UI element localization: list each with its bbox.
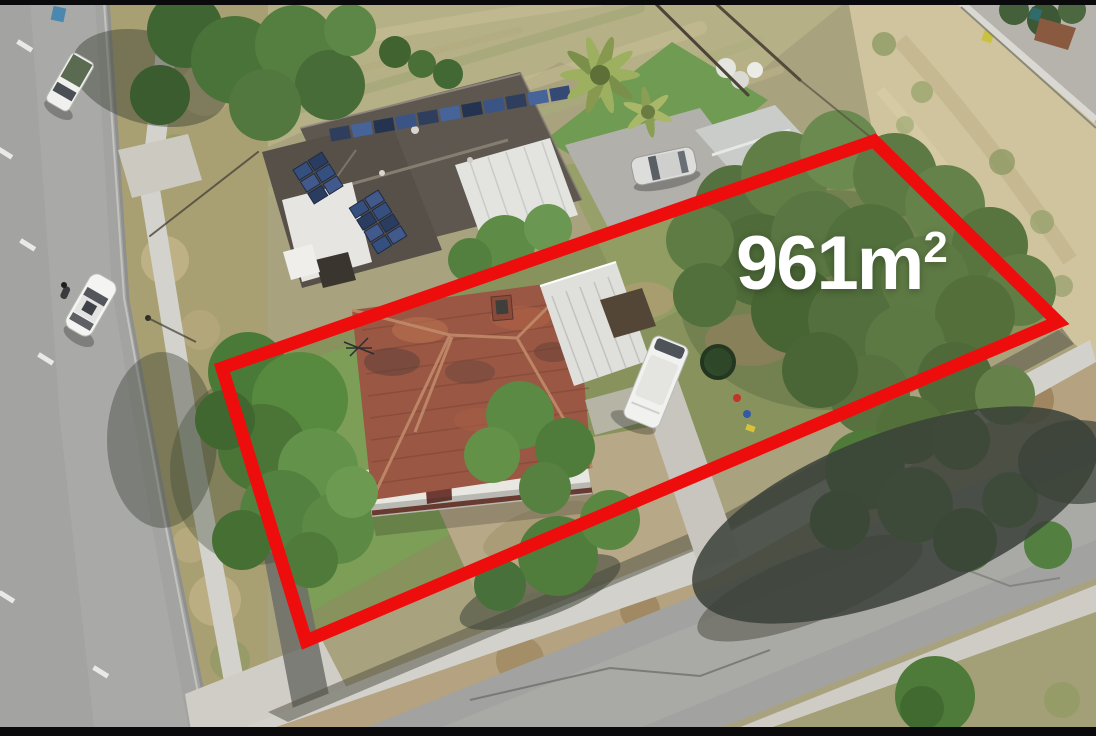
letterbox-top bbox=[0, 0, 1096, 5]
area-value: 961m bbox=[736, 221, 922, 306]
aerial-photo: 961m2 bbox=[0, 0, 1096, 736]
aerial-photo-canvas bbox=[0, 0, 1096, 736]
blue-toy bbox=[743, 410, 751, 418]
chimney bbox=[491, 295, 513, 321]
area-label: 961m2 bbox=[736, 226, 945, 302]
area-superscript: 2 bbox=[923, 223, 945, 272]
letterbox-bottom bbox=[0, 727, 1096, 736]
red-toy bbox=[733, 394, 741, 402]
